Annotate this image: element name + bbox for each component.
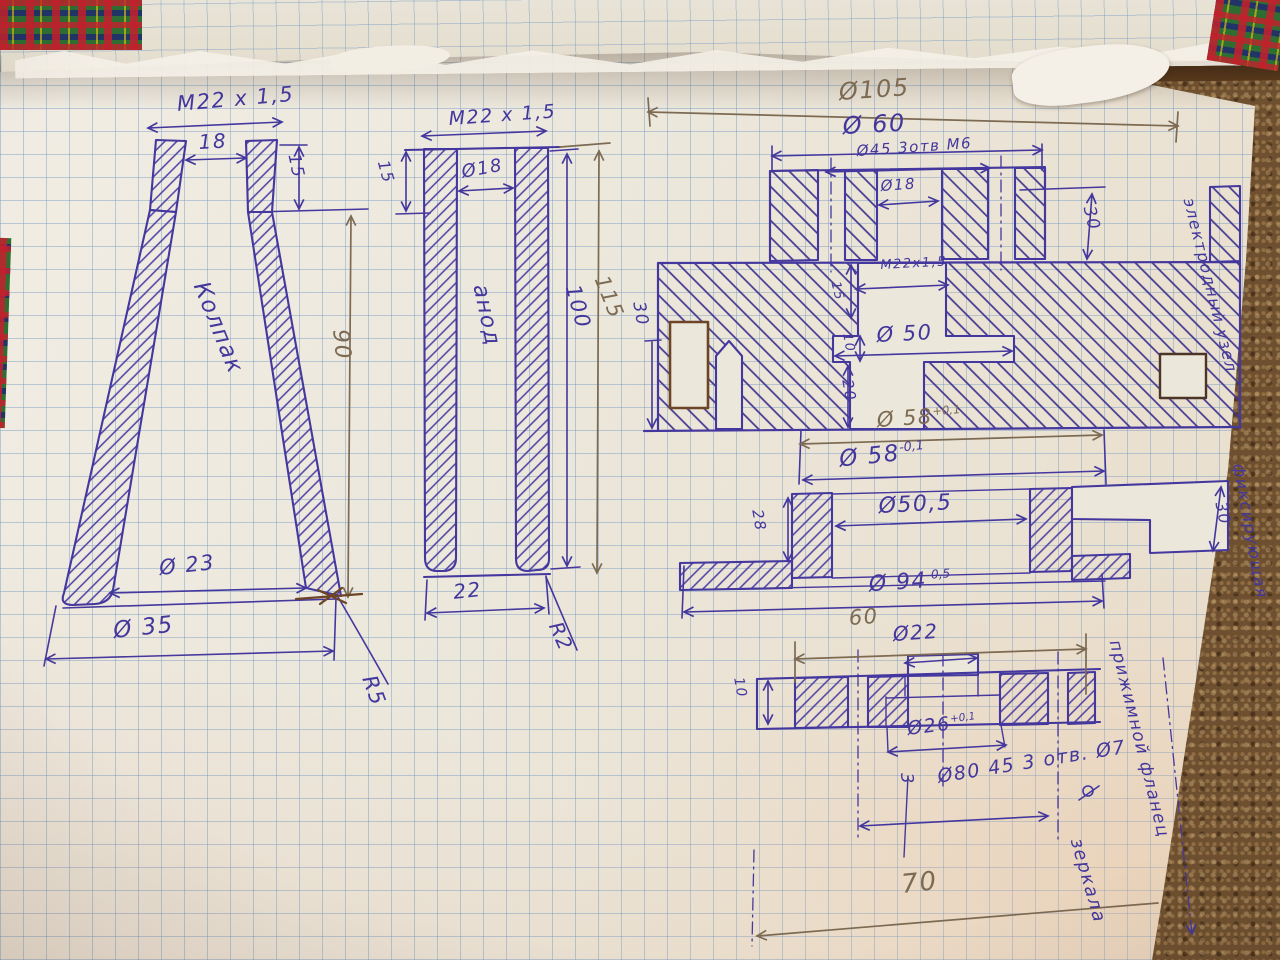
right-middle-drawing-fixing-nut [680, 481, 1228, 618]
ink-line-art [0, 0, 1280, 960]
middle-drawing-anode [396, 131, 610, 650]
right-top-drawing-electrode-unit [644, 98, 1240, 484]
right-bottom-drawing-clamping-flange [752, 634, 1192, 946]
photo-notebook-technical-sketch: М22 х 1,51815Колпак90Ø 23Ø 35R5М22 х 1,5… [0, 0, 1280, 960]
left-drawing-cap [44, 122, 388, 684]
